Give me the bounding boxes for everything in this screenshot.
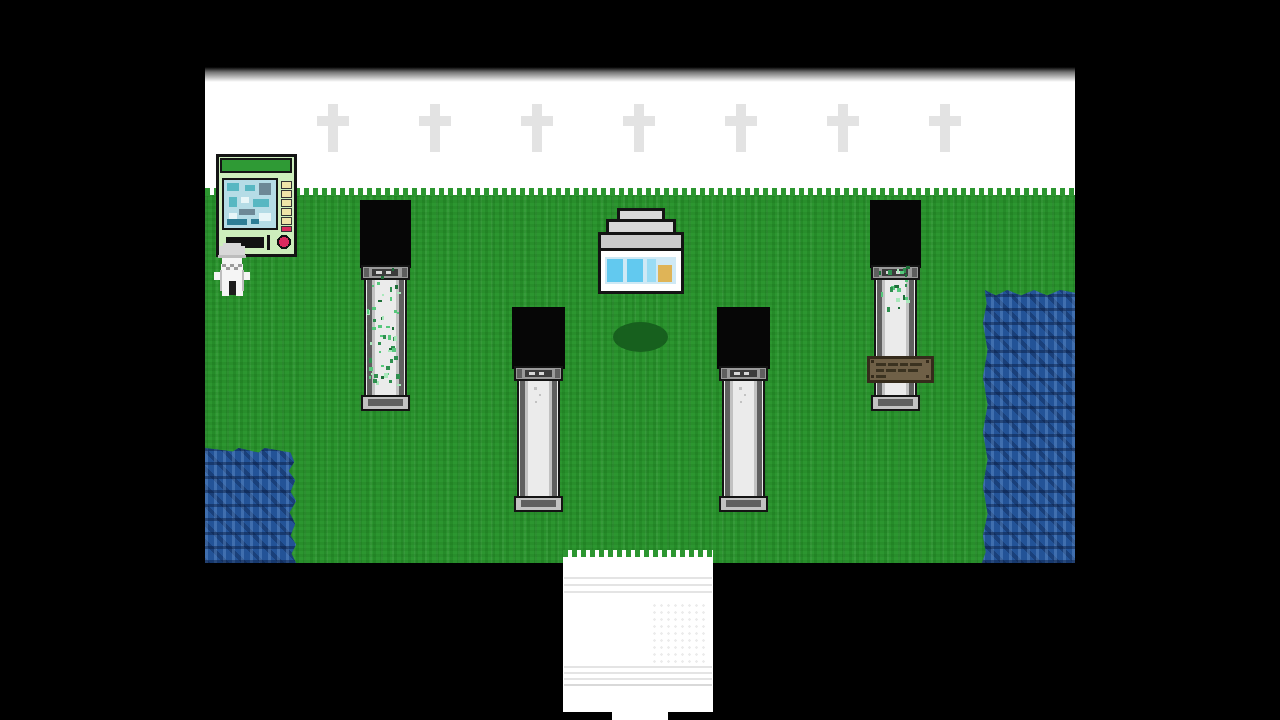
pillar-svg (512, 307, 565, 513)
stair-line (564, 584, 712, 586)
shrine-svg (597, 207, 684, 295)
cross-icon (929, 104, 961, 152)
cross-icon (521, 104, 553, 152)
cross-icon (827, 104, 859, 152)
bush-shadow (613, 322, 668, 352)
cross-icon (725, 104, 757, 152)
vending-machine-svg (215, 153, 297, 257)
wooden-sign[interactable] (866, 355, 934, 383)
path-grass-edge (563, 550, 713, 557)
pillar-svg (717, 307, 770, 513)
pillar-svg (360, 200, 411, 412)
shrine-kiosk[interactable] (597, 207, 684, 295)
grass-top-edge (205, 188, 1075, 196)
player-sprite (213, 243, 251, 301)
path-bottom-tab (612, 710, 668, 720)
path-speckle (651, 602, 707, 668)
button-column (281, 181, 291, 231)
stair-line (564, 684, 712, 686)
cross-icon (317, 104, 349, 152)
game-viewport[interactable] (205, 60, 1075, 720)
cross-icon (419, 104, 451, 152)
stair-line (564, 678, 712, 680)
player-character[interactable] (213, 243, 251, 301)
stair-line (564, 591, 712, 593)
pillar-inner-left (512, 307, 565, 513)
stair-line (564, 577, 712, 579)
top-vignette (205, 60, 1075, 82)
cross-icon (623, 104, 655, 152)
pillar-inner-right (717, 307, 770, 513)
pillar-vined-left (360, 200, 411, 412)
stair-line (564, 666, 712, 668)
pond-left (205, 448, 298, 563)
stair-line (564, 672, 712, 674)
coin-button (278, 236, 290, 248)
sign-svg (866, 355, 934, 383)
river-right (982, 290, 1075, 563)
white-stairs-path[interactable] (563, 550, 713, 712)
letterbox (0, 0, 1280, 720)
vending-machine[interactable] (215, 153, 297, 257)
